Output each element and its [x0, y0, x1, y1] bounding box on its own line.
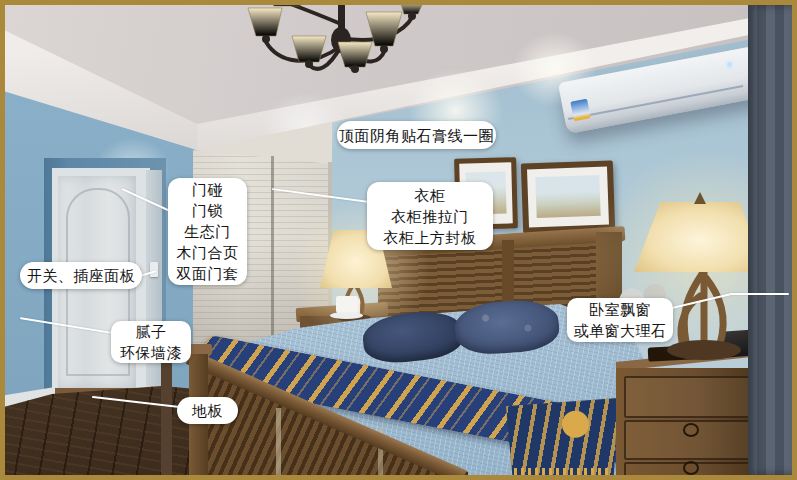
label-text: 腻子: [111, 321, 191, 342]
black-box: [723, 328, 771, 357]
label-text: 衣柜: [367, 185, 493, 206]
door-threshold: [50, 388, 162, 401]
dresser: [616, 368, 752, 480]
label-text: 开关、插座面板: [20, 265, 142, 286]
label-text: 门锁: [168, 200, 247, 221]
leader-line-window-b: [730, 293, 789, 295]
label-text: 或单窗大理石: [567, 320, 673, 341]
label-switch-panel: 开关、插座面板: [20, 262, 142, 289]
dresser-drawer: [624, 462, 754, 480]
throw-fringe: [514, 468, 612, 476]
leader-line-window-a: [672, 293, 732, 309]
leader-line-wall: [20, 317, 113, 334]
leader-line-floor: [92, 396, 181, 408]
label-text: 顶面阴角贴石膏线一圈: [337, 125, 496, 146]
picture-mat: [527, 167, 609, 228]
throw-blanket-drape: [506, 398, 618, 480]
chandelier-icon: [232, 0, 427, 96]
ac-vent-line: [568, 85, 743, 120]
label-door-hardware: 门碰 门锁 生态门 木门合页 双面门套: [168, 178, 247, 285]
leader-line-wardrobe: [272, 188, 370, 203]
nightstand: [296, 302, 389, 322]
footboard-trim: [378, 428, 383, 480]
label-ceiling-gypsum: 顶面阴角贴石膏线一圈: [337, 121, 496, 149]
pillow: [361, 308, 465, 366]
ac-indicator-dot: [727, 62, 732, 67]
light-switch: [150, 262, 158, 277]
ceiling: [0, 0, 797, 185]
label-text: 木门合页: [168, 242, 247, 263]
label-text: 生态门: [168, 221, 247, 242]
throw-blanket: [198, 334, 664, 470]
wardrobe-right-frame: [328, 162, 332, 376]
label-floor: 地板: [177, 397, 238, 424]
label-text: 衣柜上方封板: [367, 227, 493, 248]
downlight-glow: [262, 92, 347, 162]
drawer-ring-pull: [683, 461, 699, 475]
wardrobe-door-gap: [271, 156, 274, 376]
headboard-stile: [502, 240, 514, 340]
table-lamp-shade: [634, 202, 766, 272]
leader-line-switch: [140, 270, 157, 277]
drawer-ring-pull: [683, 423, 699, 437]
picture-frame: [521, 160, 615, 233]
crown-molding-left: [0, 0, 797, 200]
footboard-far-post: [161, 360, 172, 480]
crown-molding-back: [0, 0, 797, 200]
downlight-glow: [512, 32, 597, 107]
label-text: 衣柜推拉门: [367, 206, 493, 227]
annotated-bedroom-photo: 顶面阴角贴石膏线一圈 门碰 门锁 生态门 木门合页 双面门套 开关、插座面板 腻…: [0, 0, 797, 480]
nightstand-shelf: [310, 326, 376, 352]
label-text: 卧室飘窗: [567, 299, 673, 320]
label-wall-paint: 腻子 环保墙漆: [111, 321, 191, 363]
table-lamp-base: [332, 282, 378, 322]
dresser-drawer: [624, 376, 750, 418]
coffee-cup: [336, 296, 358, 314]
label-text: 双面门套: [168, 263, 247, 284]
label-bay-window: 卧室飘窗 或单窗大理石: [567, 298, 673, 342]
label-text: 地板: [177, 400, 238, 421]
lamp-finial: [694, 192, 706, 204]
wardrobe-top-filler: [0, 0, 400, 200]
label-text: 环保墙漆: [111, 342, 191, 363]
picture-art: [535, 175, 600, 218]
curtain: [748, 5, 792, 475]
cup-saucer: [330, 312, 363, 319]
leader-line-door: [122, 188, 170, 211]
air-conditioner: [558, 46, 764, 134]
pillow: [453, 297, 560, 356]
footboard-trim: [276, 408, 281, 480]
nightstand-body: [300, 316, 386, 364]
label-text: 门碰: [168, 179, 247, 200]
label-wardrobe: 衣柜 衣柜推拉门 衣柜上方封板: [367, 182, 493, 250]
downlight-glow: [95, 138, 170, 198]
footboard-panel: [0, 0, 600, 480]
ac-sticker: [570, 99, 590, 122]
dresser-top-items: [648, 344, 713, 361]
dresser-drawer: [624, 420, 752, 460]
